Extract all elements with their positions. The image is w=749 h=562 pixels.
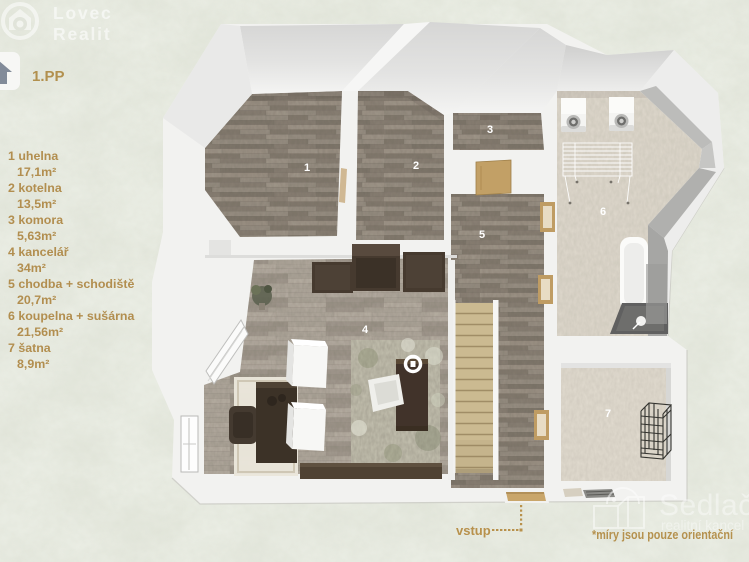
svg-text:7 šatna: 7 šatna [8, 341, 51, 355]
svg-text:4: 4 [362, 324, 369, 336]
svg-text:1 uhelna: 1 uhelna [8, 149, 58, 163]
svg-text:5,63m²: 5,63m² [17, 229, 56, 243]
svg-text:5 chodba + schodiště: 5 chodba + schodiště [8, 277, 134, 291]
svg-text:34m²: 34m² [17, 261, 46, 275]
svg-text:8,9m²: 8,9m² [17, 357, 49, 371]
svg-text:21,56m²: 21,56m² [17, 325, 63, 339]
svg-text:Realit: Realit [53, 24, 111, 44]
svg-text:6 koupelna + sušárna: 6 koupelna + sušárna [8, 309, 134, 323]
svg-text:1.PP: 1.PP [32, 68, 65, 85]
svg-text:5: 5 [479, 229, 485, 241]
svg-text:2 kotelna: 2 kotelna [8, 181, 62, 195]
svg-text:17,1m²: 17,1m² [17, 165, 56, 179]
svg-text:6: 6 [600, 206, 606, 218]
svg-text:1: 1 [304, 162, 310, 174]
svg-text:7: 7 [605, 408, 611, 420]
svg-text:20,7m²: 20,7m² [17, 293, 56, 307]
svg-text:4 kancelář: 4 kancelář [8, 245, 69, 259]
svg-text:3: 3 [487, 124, 493, 136]
svg-text:vstup: vstup [456, 523, 491, 538]
svg-text:3 komora: 3 komora [8, 213, 63, 227]
svg-text:13,5m²: 13,5m² [17, 197, 56, 211]
svg-text:*míry jsou pouze orientační: *míry jsou pouze orientační [592, 528, 733, 542]
svg-text:Lovec: Lovec [53, 3, 113, 23]
svg-text:2: 2 [413, 160, 419, 172]
